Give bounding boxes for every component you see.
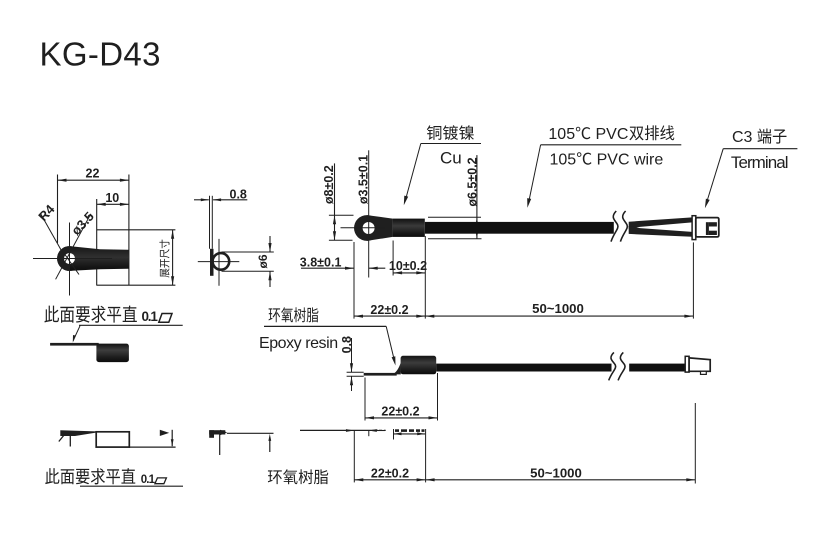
- svg-text:C3: C3: [732, 129, 753, 146]
- svg-text:10: 10: [105, 191, 119, 205]
- svg-text:105: 105: [548, 126, 575, 143]
- svg-text:Cu: Cu: [440, 149, 462, 168]
- svg-text:10±0.2: 10±0.2: [389, 259, 427, 273]
- svg-text:50~1000: 50~1000: [532, 301, 584, 316]
- svg-text:22±0.2: 22±0.2: [371, 467, 409, 481]
- svg-text:22±0.2: 22±0.2: [381, 404, 419, 418]
- svg-text:3.8±0.1: 3.8±0.1: [300, 255, 342, 269]
- svg-text:50~1000: 50~1000: [530, 466, 582, 481]
- svg-text:PVC: PVC: [595, 126, 628, 143]
- svg-text:Terminal: Terminal: [731, 153, 788, 172]
- svg-text:ø3.5±0.1: ø3.5±0.1: [356, 155, 370, 204]
- svg-text:PVC wire: PVC wire: [597, 152, 664, 169]
- svg-text:0.8: 0.8: [230, 187, 247, 201]
- svg-text:22±0.2: 22±0.2: [370, 303, 408, 317]
- svg-text:105: 105: [550, 152, 577, 169]
- svg-text:ø6: ø6: [256, 254, 270, 268]
- svg-text:0.1: 0.1: [141, 474, 156, 486]
- svg-text:Epoxy resin: Epoxy resin: [259, 335, 338, 352]
- svg-text:KG-D43: KG-D43: [40, 36, 161, 73]
- svg-text:ø8±0.2: ø8±0.2: [322, 165, 336, 204]
- svg-text:ø6.5±0.2: ø6.5±0.2: [465, 157, 479, 206]
- svg-text:22: 22: [86, 167, 100, 181]
- svg-text:0.1: 0.1: [142, 309, 159, 324]
